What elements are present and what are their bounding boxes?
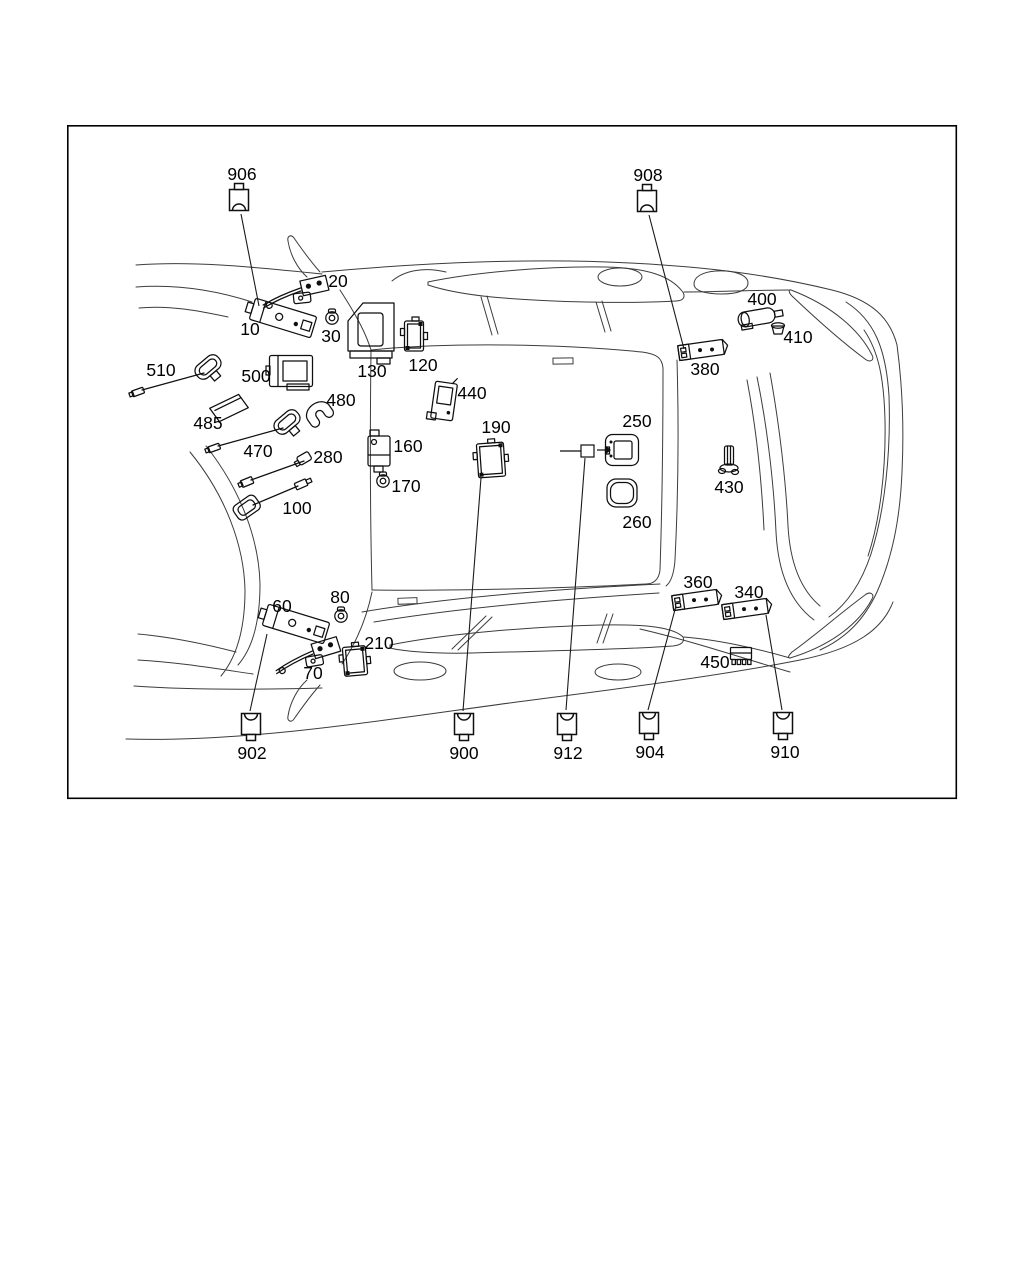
part-label-360: 360 — [683, 572, 712, 592]
part-label-480: 480 — [326, 390, 355, 410]
part-label-260: 260 — [622, 512, 651, 532]
connector-label-902: 902 — [237, 743, 266, 763]
part-label-280: 280 — [313, 447, 342, 467]
parts-diagram: 1020306070801001201301601701902102502602… — [0, 0, 1024, 1280]
connector-label-906: 906 — [227, 164, 256, 184]
connector-label-910: 910 — [770, 742, 799, 762]
part-label-130: 130 — [357, 361, 386, 381]
part-label-410: 410 — [783, 327, 812, 347]
part-label-485: 485 — [193, 413, 222, 433]
part-label-400: 400 — [747, 289, 776, 309]
part-label-20: 20 — [328, 271, 348, 291]
part-label-440: 440 — [457, 383, 486, 403]
part-label-80: 80 — [330, 587, 350, 607]
part-label-470: 470 — [243, 441, 272, 461]
connector-label-900: 900 — [449, 743, 478, 763]
page: { "frame": {"x": 67, "y": 125, "width": … — [0, 0, 1024, 1280]
part-label-60: 60 — [272, 596, 292, 616]
part-label-380: 380 — [690, 359, 719, 379]
part-label-120: 120 — [408, 355, 437, 375]
connector-label-908: 908 — [633, 165, 662, 185]
part-label-500: 500 — [241, 366, 270, 386]
part-label-160: 160 — [393, 436, 422, 456]
part-label-210: 210 — [364, 633, 393, 653]
part-label-450: 450 — [700, 652, 729, 672]
connector-label-912: 912 — [553, 743, 582, 763]
part-label-510: 510 — [146, 360, 175, 380]
part-label-70: 70 — [303, 663, 323, 683]
part-label-30: 30 — [321, 326, 341, 346]
part-label-170: 170 — [391, 476, 420, 496]
part-label-10: 10 — [240, 319, 260, 339]
part-label-340: 340 — [734, 582, 763, 602]
part-label-190: 190 — [481, 417, 510, 437]
part-label-100: 100 — [282, 498, 311, 518]
part-label-430: 430 — [714, 477, 743, 497]
part-label-250: 250 — [622, 411, 651, 431]
connector-label-904: 904 — [635, 742, 664, 762]
diagram-frame — [68, 126, 957, 799]
